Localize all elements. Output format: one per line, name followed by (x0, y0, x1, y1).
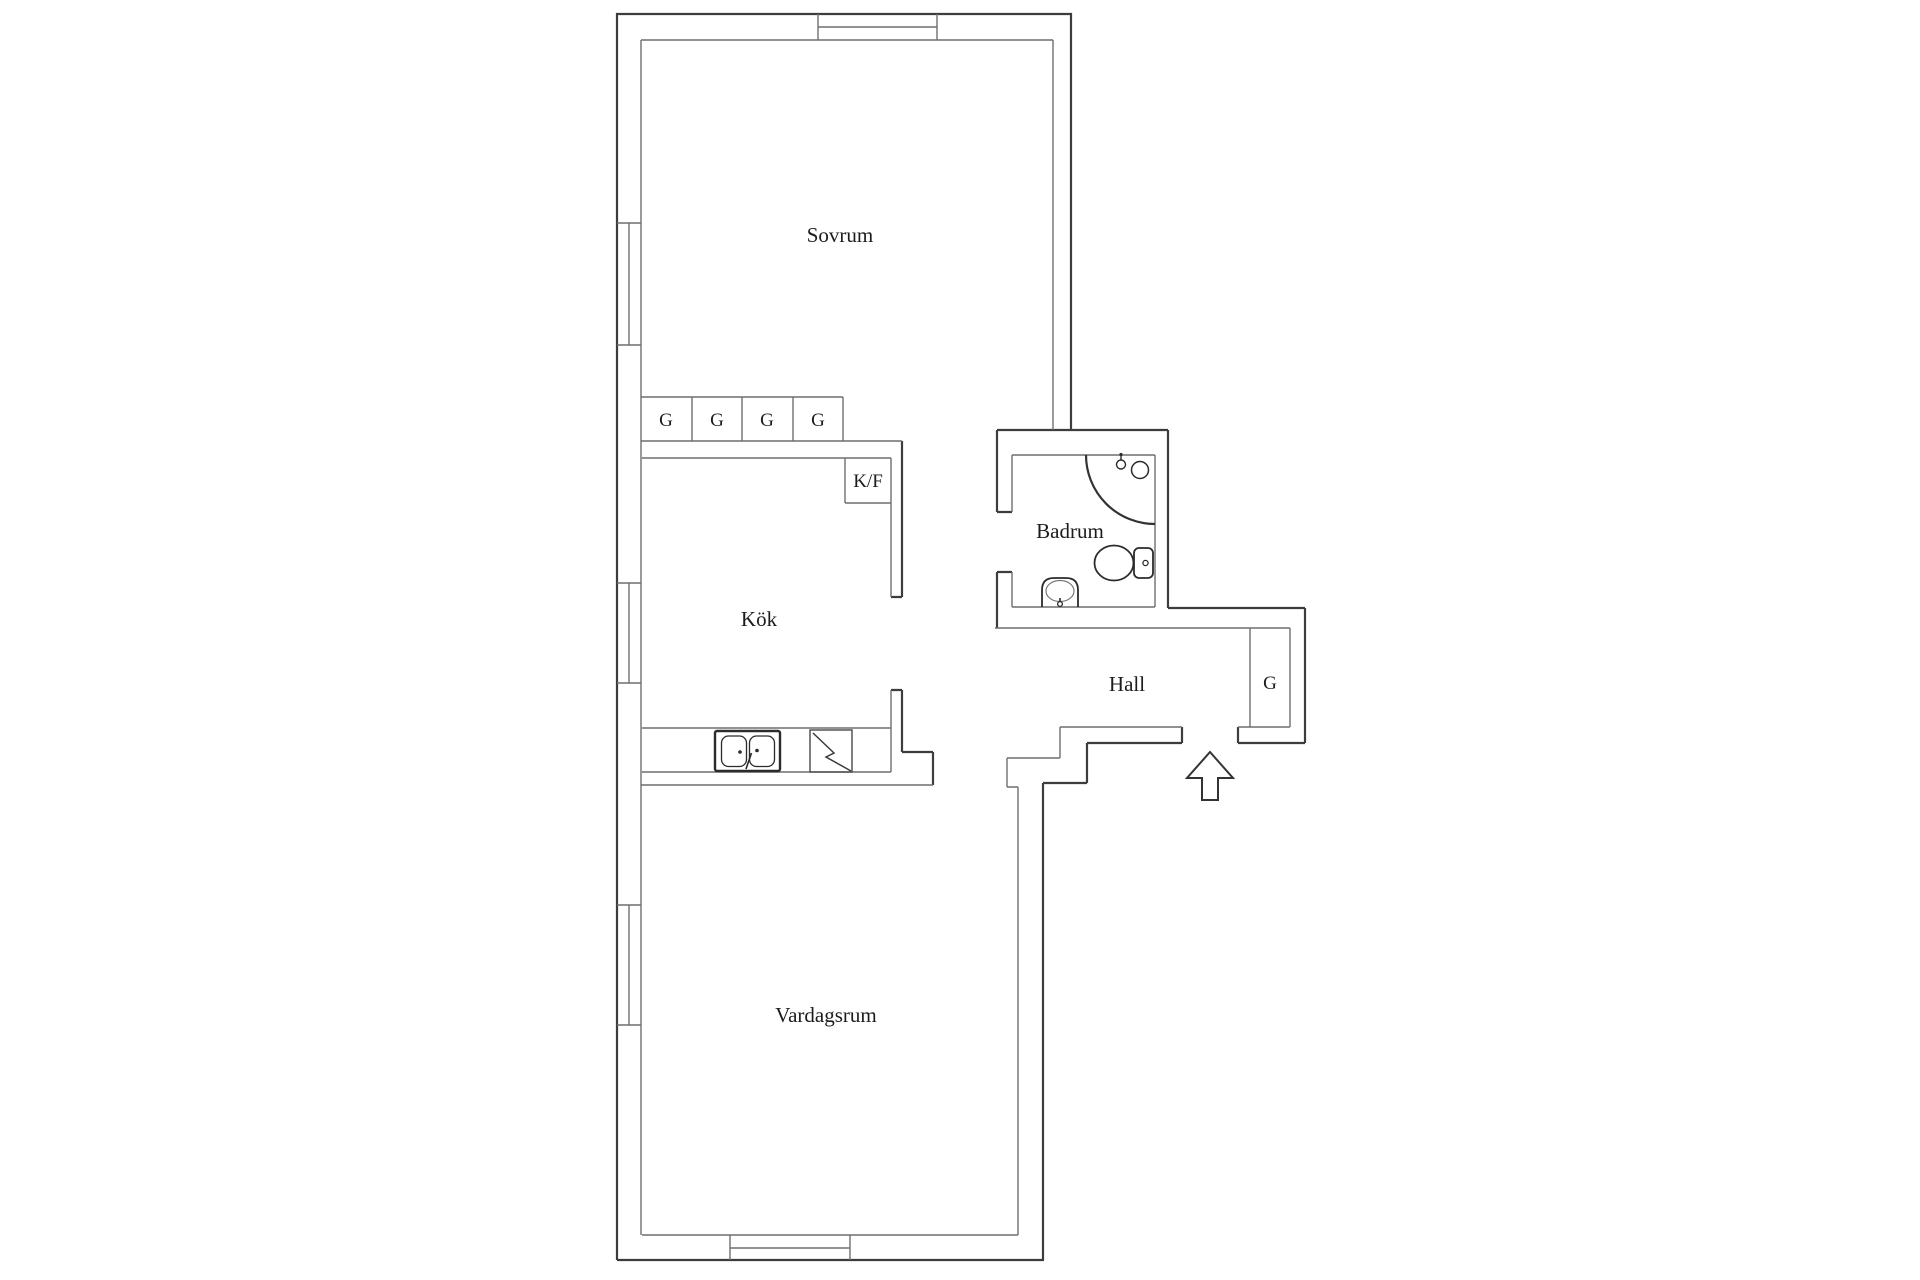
double-sink-icon (715, 731, 780, 771)
outer-wall-lines (617, 14, 1305, 1260)
room-label-sovrum: Sovrum (807, 223, 874, 247)
round-basin-icon (1132, 462, 1149, 479)
hall-wardrobe-label: G (1263, 673, 1277, 694)
floor-plan-drawing: G G G G K/F (0, 0, 1920, 1280)
fridge-freezer-label: K/F (853, 471, 883, 492)
windows (617, 14, 937, 1260)
floor-plan-canvas: G G G G K/F (0, 0, 1920, 1280)
room-label-vardagsrum: Vardagsrum (775, 1003, 876, 1027)
wardrobe-label: G (811, 410, 825, 431)
window-icon-bottom-livingroom (730, 1235, 850, 1260)
outer-walls (617, 14, 1305, 1260)
shower-corner-icon (1086, 455, 1155, 524)
room-labels: Sovrum Kök Badrum Hall Vardagsrum (741, 223, 1145, 1027)
stove-icon (810, 730, 852, 772)
entrance-arrow-icon (1187, 752, 1233, 800)
window-icon-left-bedroom (617, 223, 641, 345)
window-icon-left-livingroom (617, 905, 641, 1025)
window-icon-top-bedroom (818, 14, 937, 40)
inner-wall-lines (641, 40, 1290, 1235)
room-label-badrum: Badrum (1036, 519, 1104, 543)
inner-walls (641, 40, 1290, 1235)
washbasin-icon (1042, 578, 1078, 607)
wardrobe-label: G (659, 410, 673, 431)
room-label-hall: Hall (1109, 672, 1145, 696)
window-icon-left-kitchen (617, 583, 641, 683)
wardrobe-label: G (760, 410, 774, 431)
toilet-icon (1095, 546, 1154, 581)
room-label-kok: Kök (741, 607, 778, 631)
wardrobe-label: G (710, 410, 724, 431)
